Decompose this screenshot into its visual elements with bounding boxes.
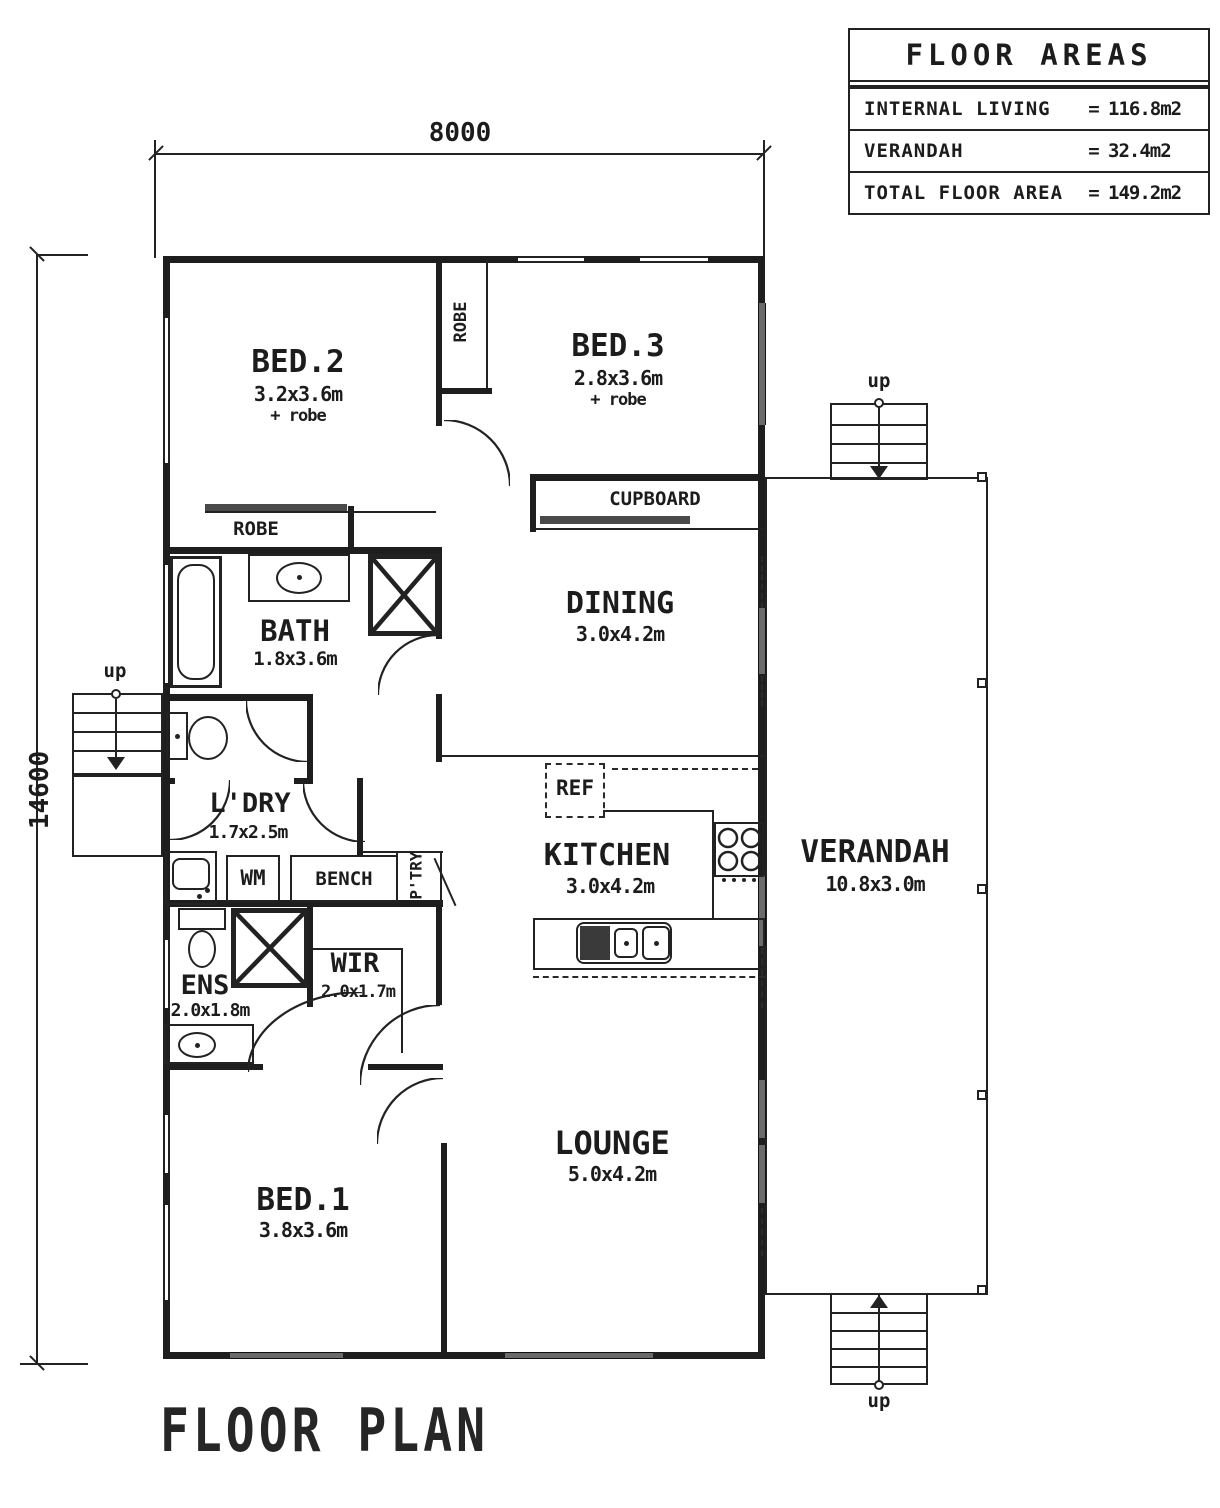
equals-sign: = (1080, 182, 1108, 204)
room-size-lounge: 5.0x4.2m (542, 1162, 682, 1186)
bench-label: BENCH (290, 868, 398, 890)
cupboard-shelf (540, 516, 690, 524)
verandah-post (977, 678, 987, 688)
room-label-verandah: VERANDAH (790, 834, 960, 870)
bench-overhang-dashed (533, 976, 765, 978)
room-label-wir: WIR (313, 948, 397, 979)
verandah-post (977, 1090, 987, 1100)
bench-line (442, 755, 765, 757)
verandah-post (977, 884, 987, 894)
row-value: 32.4m2 (1108, 140, 1208, 162)
dimension-line-horizontal (155, 153, 765, 155)
up-label: up (857, 370, 901, 392)
basin-drain (195, 1043, 200, 1048)
room-size-bed3: 2.8x3.6m (548, 366, 688, 390)
door-arc (444, 420, 510, 486)
window (758, 1145, 766, 1203)
extension-line (36, 254, 88, 256)
room-label-ldry: L'DRY (192, 788, 308, 819)
page-title: FLOOR PLAN (160, 1396, 489, 1466)
window (230, 1352, 343, 1359)
stair-tread (74, 731, 161, 733)
room-size-ldry: 1.7x2.5m (190, 822, 306, 843)
sliding-door (761, 556, 763, 608)
sink-drain (654, 941, 659, 946)
wall-segment (441, 1143, 447, 1355)
wall-segment (530, 474, 536, 532)
counter-edge (603, 810, 714, 812)
window (163, 1205, 170, 1300)
stair-landing (72, 775, 163, 857)
stair-start-marker (111, 689, 121, 699)
room-size-ens: 2.0x1.8m (163, 1000, 257, 1021)
window (163, 565, 170, 683)
room-label-lounge: LOUNGE (542, 1124, 682, 1162)
door-arc (248, 992, 362, 1072)
row-value: 149.2m2 (1108, 182, 1208, 204)
robe-divider (486, 260, 488, 388)
sliding-door (761, 676, 763, 706)
up-label: up (93, 660, 137, 682)
stair-tread (74, 712, 161, 714)
shelf-line (536, 528, 765, 530)
washing-machine-label: WM (226, 866, 280, 890)
wall-segment (436, 905, 442, 1005)
pantry-label: P'TRY (407, 841, 426, 911)
fridge-label: REF (545, 776, 605, 800)
window (640, 256, 708, 263)
floor-areas-table: FLOOR AREAS INTERNAL LIVING = 116.8m2 VE… (848, 28, 1210, 215)
room-label-bed3: BED.3 (548, 328, 688, 364)
toilet-bowl (188, 716, 228, 760)
row-label: VERANDAH (850, 140, 1080, 162)
stair-tread (74, 750, 161, 752)
pantry-door-line (434, 858, 457, 906)
floor-areas-row-total: TOTAL FLOOR AREA = 149.2m2 (850, 171, 1208, 213)
robe-label: ROBE (196, 518, 316, 540)
room-size-dining: 3.0x4.2m (555, 622, 685, 646)
window (518, 256, 584, 263)
overhead-cupboard-dashed (612, 768, 758, 770)
dimension-width: 8000 (400, 118, 520, 148)
room-extra-bed3: + robe (548, 390, 688, 410)
bathtub-inner (177, 564, 215, 680)
floor-plan-document: FLOOR AREAS INTERNAL LIVING = 116.8m2 VE… (0, 0, 1220, 1508)
window (758, 608, 766, 674)
basin-drain (297, 575, 302, 580)
wall-segment (163, 547, 442, 554)
equals-sign: = (1080, 140, 1108, 162)
toilet-button (175, 734, 180, 739)
toilet-cistern (178, 908, 226, 930)
room-size-bed1: 3.8x3.6m (233, 1218, 373, 1242)
stair-arrow-up (870, 1295, 888, 1308)
door-arc (378, 635, 438, 695)
extension-line (763, 140, 765, 258)
drainer (580, 926, 610, 960)
room-size-bath: 1.8x3.6m (237, 648, 353, 670)
row-label: INTERNAL LIVING (850, 98, 1080, 120)
robe-closet-label: ROBE (451, 282, 471, 362)
pantry-line (363, 851, 443, 853)
verandah-post (977, 1285, 987, 1295)
room-label-ens: ENS (163, 970, 247, 1001)
equals-sign: = (1080, 98, 1108, 120)
dimension-height: 14600 (25, 725, 55, 855)
floor-areas-row-internal-living: INTERNAL LIVING = 116.8m2 (850, 87, 1208, 129)
door-arc (360, 1005, 440, 1085)
window (758, 303, 766, 425)
wall-segment (436, 694, 442, 762)
shelf-line (205, 511, 436, 513)
stair-start-marker (874, 1380, 884, 1390)
laundry-tub-inner (172, 858, 210, 890)
window (505, 1352, 653, 1359)
room-label-bath: BATH (237, 614, 353, 648)
door-arc (303, 780, 365, 842)
wall-segment (436, 256, 442, 426)
cupboard-label: CUPBOARD (575, 488, 735, 510)
stair-arrow-down (870, 466, 888, 479)
up-label: up (857, 1390, 901, 1412)
wall-segment (436, 388, 492, 394)
room-extra-bed2: + robe (228, 406, 368, 426)
room-label-bed2: BED.2 (228, 344, 368, 380)
room-size-wir: 2.0x1.7m (313, 982, 403, 1002)
wall-segment (348, 506, 354, 553)
row-label: TOTAL FLOOR AREA (850, 182, 1080, 204)
window (163, 1115, 170, 1173)
floor-areas-title: FLOOR AREAS (850, 30, 1208, 82)
row-value: 116.8m2 (1108, 98, 1208, 120)
tap (197, 894, 202, 899)
extension-line (20, 1363, 88, 1365)
floor-areas-row-verandah: VERANDAH = 32.4m2 (850, 129, 1208, 171)
extension-line (154, 140, 156, 258)
sliding-door (761, 1208, 763, 1256)
window (163, 318, 170, 463)
room-label-bed1: BED.1 (233, 1182, 373, 1218)
stair-start-marker (874, 398, 884, 408)
shower-icon (368, 554, 440, 636)
door-arc (377, 1078, 443, 1144)
window (758, 1080, 766, 1138)
wall-segment (530, 474, 765, 481)
room-size-bed2: 3.2x3.6m (228, 382, 368, 406)
tap (205, 888, 210, 893)
verandah-post (977, 472, 987, 482)
stair-arrow-down (107, 757, 125, 770)
cooktop-icon (714, 822, 764, 884)
room-label-dining: DINING (555, 586, 685, 621)
room-label-kitchen: KITCHEN (537, 838, 677, 873)
room-size-verandah: 10.8x3.0m (790, 872, 960, 896)
toilet-bowl (188, 930, 216, 968)
door-arc (246, 700, 308, 762)
sink-drain (624, 941, 629, 946)
room-size-kitchen: 3.0x4.2m (540, 874, 680, 898)
